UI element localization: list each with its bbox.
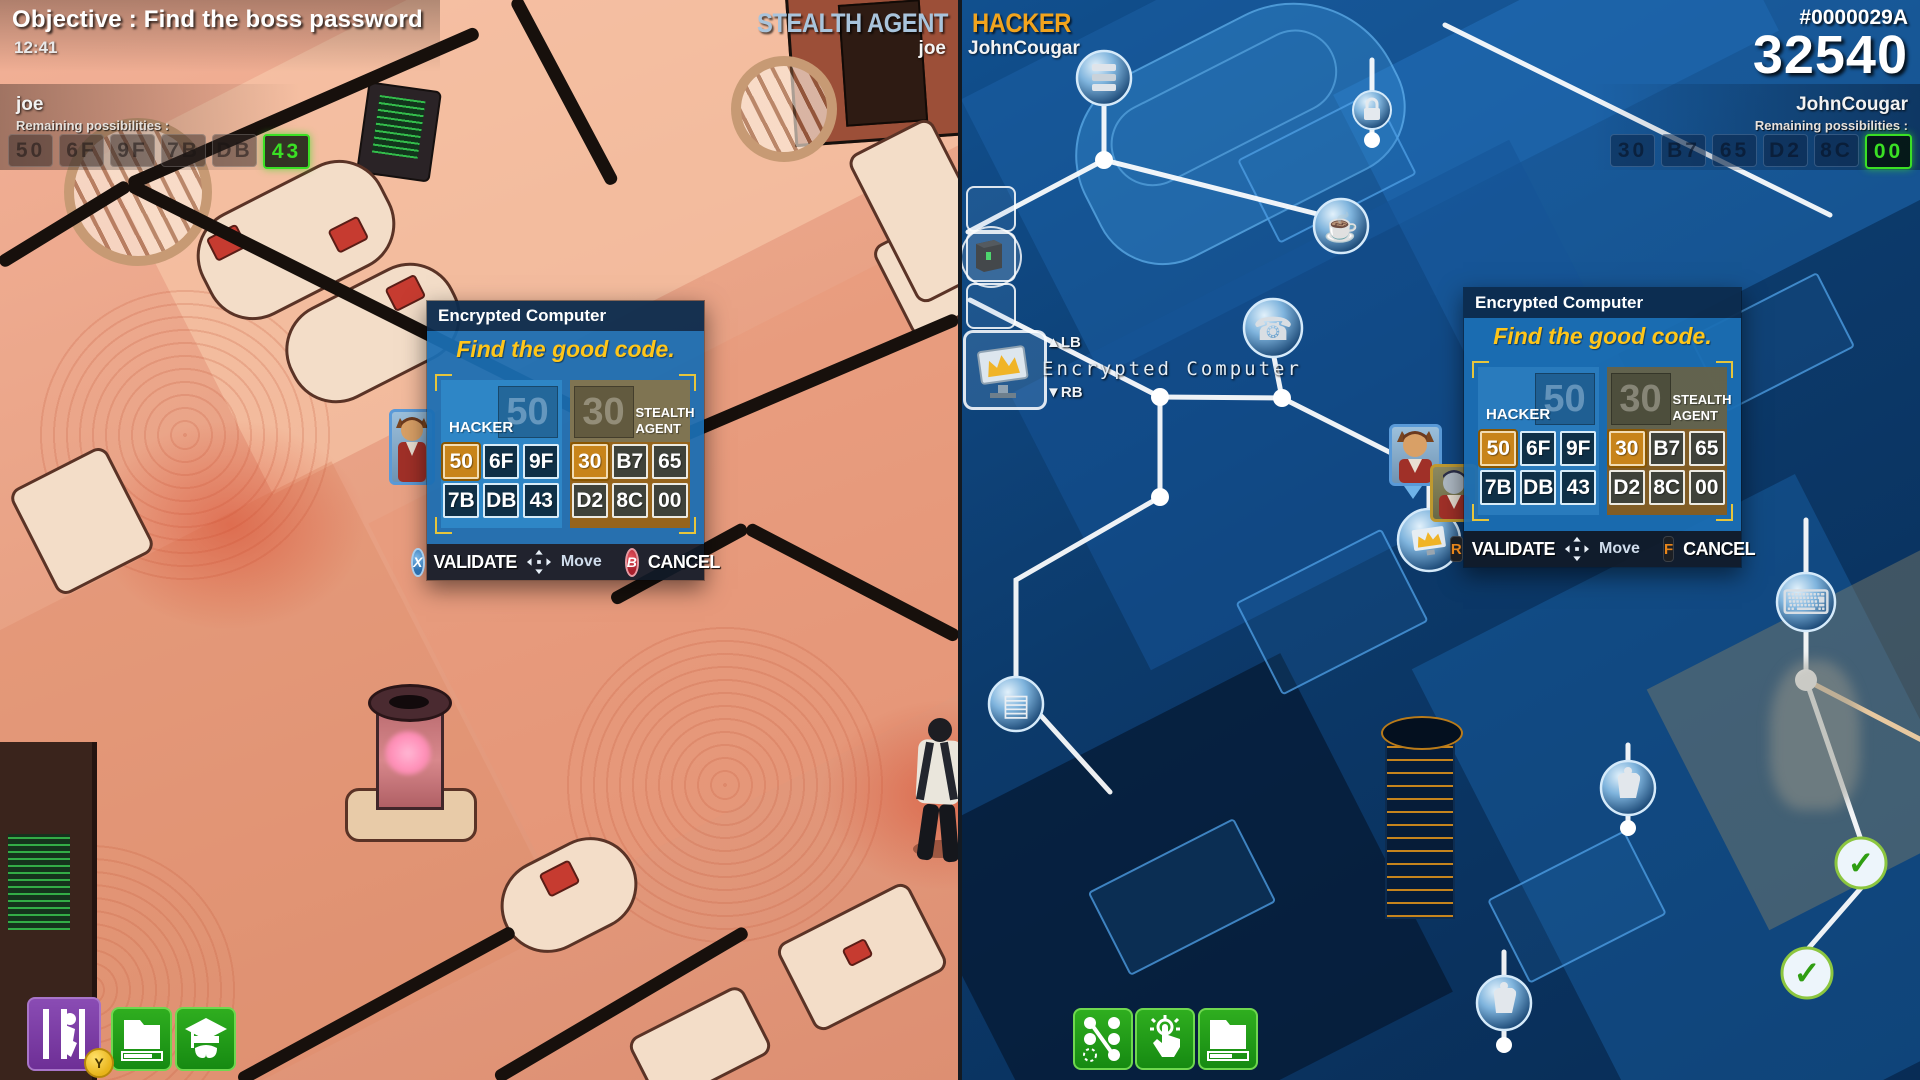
- code-cell-selected[interactable]: 50: [443, 444, 479, 479]
- objective-text: Objective : Find the boss password: [12, 6, 423, 34]
- svg-text:▤: ▤: [1002, 689, 1030, 722]
- lb-shoulder-hint: ▲LB: [1046, 334, 1081, 351]
- hacker-remaining-label: Remaining possibilities :: [1755, 118, 1908, 133]
- agent-remaining-codes: 50 6F 9F 7B DB 43: [8, 134, 310, 169]
- remote-tap-button[interactable]: [1135, 1008, 1195, 1070]
- code-cell[interactable]: 00: [1689, 470, 1725, 505]
- hacker-code-column: 50 HACKER 50 6F 9F 7B DB 43: [441, 380, 562, 528]
- selected-device-name: Encrypted Computer: [1042, 358, 1302, 380]
- code-cell[interactable]: 7B: [443, 483, 479, 518]
- cancel-button[interactable]: CANCEL: [648, 552, 720, 573]
- rb-shoulder-hint: ▼RB: [1046, 384, 1083, 401]
- tap-hand-icon: [1142, 1015, 1188, 1063]
- hacker-role-banner: HACKER: [972, 8, 1071, 39]
- svg-text:☕: ☕: [1324, 210, 1359, 244]
- code-cell-selected[interactable]: 30: [1609, 431, 1645, 466]
- node-coffee[interactable]: ☕: [1314, 199, 1368, 253]
- agent-hint-value: 30: [574, 386, 634, 438]
- move-label: Move: [561, 553, 602, 571]
- move-label: Move: [1599, 540, 1640, 558]
- pattern-lock-icon: [1080, 1015, 1126, 1063]
- pointer-triangle: [1404, 486, 1422, 499]
- svg-text:⌨: ⌨: [1781, 584, 1830, 622]
- up-arrow-icon: ▲: [1046, 334, 1061, 351]
- node-documents[interactable]: ▤: [989, 677, 1043, 731]
- node-check-done: ✓: [1782, 948, 1832, 998]
- node-phone[interactable]: ☎: [1244, 299, 1302, 357]
- code-cell[interactable]: 6F: [1520, 431, 1556, 466]
- terminal-monitor: [356, 81, 442, 182]
- agent-role-banner: STEALTH AGENT: [757, 8, 948, 39]
- code-box: D2: [1763, 134, 1808, 167]
- folder-progress-icon: [1206, 1016, 1250, 1062]
- key-r-icon[interactable]: R: [1450, 536, 1463, 562]
- hacker-column-label: HACKER: [449, 419, 513, 436]
- pattern-trace-button[interactable]: [1073, 1008, 1133, 1070]
- gamepad-b-icon[interactable]: B: [625, 548, 639, 577]
- agent-column-label: STEALTH AGENT: [1673, 392, 1731, 423]
- node-keyboard[interactable]: ⌨: [1777, 573, 1835, 631]
- operation-split-screen: Objective : Find the boss password 12:41…: [0, 0, 1920, 1080]
- code-cell[interactable]: 8C: [1649, 470, 1685, 505]
- node-server[interactable]: [1077, 51, 1131, 105]
- code-cell-selected[interactable]: 50: [1480, 431, 1516, 466]
- agent-code-column: 30 STEALTH AGENT 30 B7 65 D2 8C 00: [1607, 367, 1728, 515]
- code-cell-selected[interactable]: 30: [572, 444, 608, 479]
- code-box: 9F: [110, 134, 155, 167]
- code-cell[interactable]: 43: [523, 483, 559, 518]
- cancel-button[interactable]: CANCEL: [1683, 539, 1755, 560]
- hacker-code-column: 50 HACKER 50 6F 9F 7B DB 43: [1478, 367, 1599, 515]
- code-box: 30: [1610, 134, 1655, 167]
- hacker-remaining-codes: 30 B7 65 D2 8C 00: [1610, 134, 1912, 169]
- svg-text:☎: ☎: [1253, 311, 1293, 347]
- spy-training-button[interactable]: [175, 1007, 236, 1071]
- round-shelf: [731, 56, 837, 162]
- code-cell[interactable]: D2: [1609, 470, 1645, 505]
- key-f-icon[interactable]: F: [1663, 536, 1674, 562]
- svg-text:✓: ✓: [1794, 955, 1821, 991]
- gamepad-x-icon[interactable]: X: [411, 548, 424, 577]
- code-cell[interactable]: 7B: [1480, 470, 1516, 505]
- code-cell[interactable]: D2: [572, 483, 608, 518]
- encrypted-computer-panel: Encrypted Computer Find the good code. 5…: [1463, 287, 1742, 568]
- code-box-remaining: 43: [263, 134, 310, 169]
- svg-text:✓: ✓: [1848, 845, 1875, 881]
- code-cell[interactable]: 9F: [1560, 431, 1596, 466]
- code-box: 8C: [1814, 134, 1859, 167]
- ghost-figure: [1770, 660, 1860, 810]
- graduation-mask-icon: [183, 1016, 229, 1062]
- code-cell[interactable]: 00: [652, 483, 688, 518]
- code-box: 7B: [161, 134, 206, 167]
- hacker-banner-player: JohnCougar: [968, 38, 1080, 60]
- split-screen-divider: [958, 0, 962, 1080]
- code-cell[interactable]: B7: [612, 444, 648, 479]
- move-cross-icon: [1564, 536, 1590, 562]
- agent-banner-player: joe: [919, 38, 946, 60]
- hacker-view: ☕ ☎ ▤ ⌨: [960, 0, 1920, 1080]
- code-cell[interactable]: 6F: [483, 444, 519, 479]
- code-cell[interactable]: 43: [1560, 470, 1596, 505]
- device-slot[interactable]: [966, 283, 1016, 329]
- gamepad-y-badge: Y: [84, 1048, 114, 1078]
- mission-timer: 12:41: [14, 38, 57, 58]
- panel-title: Encrypted Computer: [427, 301, 704, 331]
- encrypted-computer-panel: Encrypted Computer Find the good code. 5…: [426, 300, 705, 581]
- code-box-remaining: 00: [1865, 134, 1912, 169]
- node-cream-jug[interactable]: [1477, 976, 1531, 1030]
- node-check-done: ✓: [1836, 838, 1886, 888]
- agent-view: Objective : Find the boss password 12:41…: [0, 0, 960, 1080]
- hack-progress-button[interactable]: [111, 1007, 172, 1071]
- guard-character: [905, 718, 960, 868]
- down-arrow-icon: ▼: [1046, 384, 1061, 401]
- code-cell[interactable]: 65: [1689, 431, 1725, 466]
- move-cross-icon: [526, 549, 552, 575]
- device-slot-selected[interactable]: [963, 330, 1047, 410]
- node-lock[interactable]: [1353, 91, 1391, 129]
- hacker-column-label: HACKER: [1486, 406, 1550, 423]
- validate-button[interactable]: VALIDATE: [1472, 539, 1555, 560]
- agent-hint-value: 30: [1611, 373, 1671, 425]
- code-cell[interactable]: 8C: [612, 483, 648, 518]
- code-cell[interactable]: 9F: [523, 444, 559, 479]
- agent-column-label: STEALTH AGENT: [636, 405, 694, 436]
- agent-remaining-label: Remaining possibilities :: [16, 118, 169, 133]
- agent-hud-player-name: joe: [16, 94, 43, 116]
- laptop-progress-icon: [120, 1016, 164, 1062]
- panel-title: Encrypted Computer: [1464, 288, 1741, 318]
- code-box: 6F: [59, 134, 104, 167]
- panel-subtitle: Find the good code.: [1464, 318, 1741, 355]
- crown-monitor-icon: [970, 337, 1036, 403]
- code-cell[interactable]: 65: [652, 444, 688, 479]
- score-value: 32540: [1753, 24, 1908, 86]
- hacker-hud-player-name: JohnCougar: [1796, 94, 1908, 116]
- node-cream-jug[interactable]: [1601, 761, 1655, 815]
- selection-glow: [960, 226, 1022, 288]
- code-cell[interactable]: B7: [1649, 431, 1685, 466]
- code-box: 50: [8, 134, 53, 167]
- code-box: 65: [1712, 134, 1757, 167]
- code-cell[interactable]: DB: [483, 483, 519, 518]
- agent-code-column: 30 STEALTH AGENT 30 B7 65 D2 8C 00: [570, 380, 691, 528]
- code-box: DB: [212, 134, 257, 167]
- code-cell[interactable]: DB: [1520, 470, 1556, 505]
- file-download-button[interactable]: [1198, 1008, 1258, 1070]
- validate-button[interactable]: VALIDATE: [434, 552, 517, 573]
- panel-subtitle: Find the good code.: [427, 331, 704, 368]
- jail-sneak-icon: [37, 1007, 91, 1061]
- code-box: B7: [1661, 134, 1706, 167]
- desk: [626, 983, 775, 1080]
